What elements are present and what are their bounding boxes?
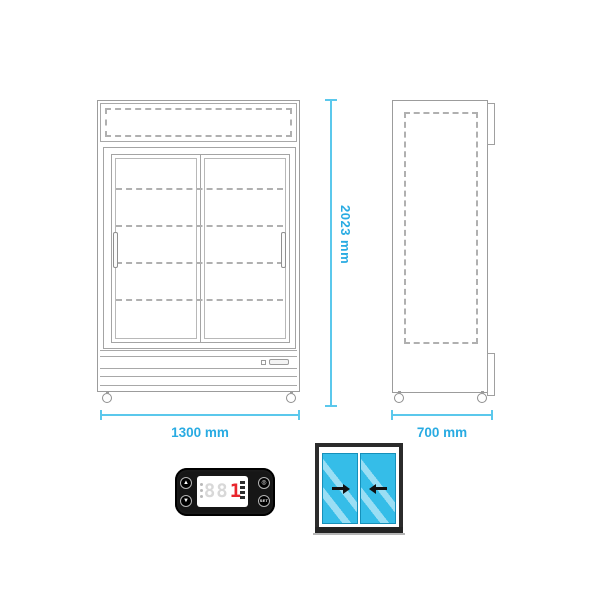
shelf-line: [116, 299, 283, 301]
left-door-glass: [115, 158, 197, 339]
dimension-tick: [325, 99, 337, 101]
side-panel-outline: [404, 112, 478, 344]
louver-line: [100, 368, 297, 369]
doors-icon-frame: [315, 443, 403, 527]
set-button: SET: [258, 495, 270, 507]
louver-line: [100, 376, 297, 377]
louver-line: [100, 385, 297, 386]
dimension-tick: [100, 410, 102, 420]
canopy-panel: [100, 103, 297, 142]
height-dimension-line: [330, 100, 332, 406]
width-dimension: 1300 mm: [100, 410, 300, 442]
dimension-tick: [491, 410, 493, 420]
down-arrow-icon: ▼: [183, 498, 189, 504]
dimension-tick: [298, 410, 300, 420]
up-arrow-icon: ▲: [183, 480, 189, 486]
caster-wheel: [394, 393, 404, 403]
badge-bar: [269, 359, 289, 365]
right-door-glass: [204, 158, 286, 339]
shelf-line: [116, 225, 283, 227]
door-frame-flange-bottom: [487, 353, 495, 396]
ghost-segment-digits: 88: [204, 482, 229, 501]
set-button-label: SET: [260, 499, 268, 503]
depth-dimension-label: 700 mm: [391, 425, 493, 440]
caster-wheel: [477, 393, 487, 403]
door-area: [103, 147, 296, 349]
arrow-right-icon: [332, 487, 343, 490]
doors-icon-shadow: [313, 533, 405, 535]
dimension-tick: [325, 405, 337, 407]
front-view: [97, 100, 300, 392]
brand-badge: [261, 359, 289, 365]
width-dimension-label: 1300 mm: [100, 425, 300, 440]
width-dimension-line: [101, 414, 299, 416]
right-door-handle: [281, 232, 286, 268]
left-sliding-door: [111, 154, 201, 343]
louver-panel: [100, 350, 297, 392]
refrigerator-spec-diagram: 2023 mm 1300 mm 700 mm ▲ ▼ 88 1: [0, 0, 600, 600]
temperature-controller: ▲ ▼ 88 1 ◎ SET: [175, 468, 275, 516]
caster-wheel: [102, 393, 112, 403]
down-button: ▼: [180, 495, 192, 507]
up-button: ▲: [180, 477, 192, 489]
side-view: [392, 100, 488, 393]
shelf-line: [116, 188, 283, 190]
depth-dimension: 700 mm: [391, 410, 493, 442]
depth-dimension-line: [392, 414, 492, 416]
status-indicator-icons: [200, 483, 203, 498]
controller-display: 88 1: [197, 476, 248, 507]
height-dimension: 2023 mm: [324, 99, 364, 409]
power-button: ◎: [258, 477, 270, 489]
doors-icon-right-glass: [360, 453, 396, 524]
right-sliding-door: [200, 154, 290, 343]
power-icon: ◎: [261, 480, 266, 486]
shelf-line: [116, 262, 283, 264]
dimension-tick: [391, 410, 393, 420]
height-dimension-label: 2023 mm: [337, 201, 354, 268]
badge-dot: [261, 360, 266, 365]
unit-indicator-icons: [240, 481, 245, 499]
louver-line: [100, 356, 297, 357]
arrow-left-icon: [376, 487, 387, 490]
caster-wheel: [286, 393, 296, 403]
sliding-doors-icon: [315, 443, 403, 535]
left-door-handle: [113, 232, 118, 268]
doors-icon-left-glass: [322, 453, 358, 524]
canopy-insert-outline: [105, 108, 292, 137]
door-frame-flange-top: [487, 103, 495, 145]
